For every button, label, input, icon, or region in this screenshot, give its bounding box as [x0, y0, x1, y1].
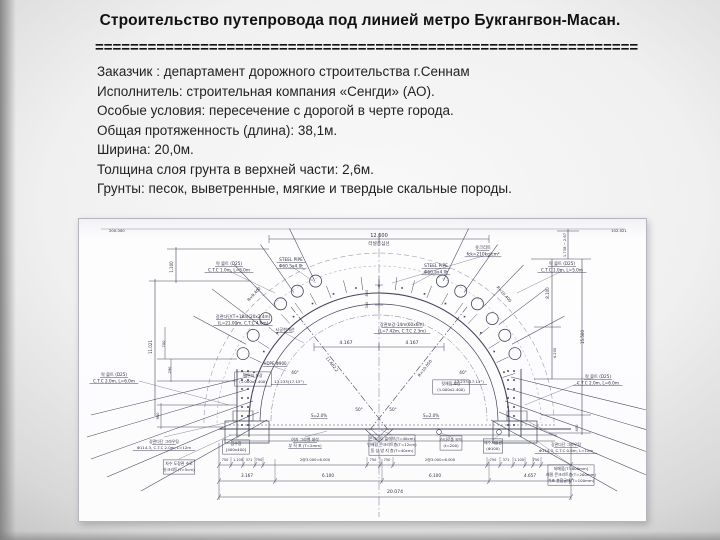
- drawing-text: 스티로폼 보드: [440, 437, 463, 442]
- drawing-label-angle50-l: 50°: [355, 407, 362, 412]
- drawing-label-grout-br: 강관다단 그라우팅Φ114.3, C.T.C 0.6m, L=12m: [535, 442, 597, 453]
- drawing-text: 40°: [459, 370, 466, 375]
- drawing-text: 4.200: [553, 347, 557, 358]
- drawing-text: 락 볼트 (D25): [549, 260, 575, 267]
- drawing-text: 강관보강-14m(60x6m): [380, 321, 425, 327]
- drawing-text: HDPE Φ900: [263, 361, 287, 366]
- drawing-label-a-371-l: 371: [246, 458, 253, 462]
- drawing-text: 750: [222, 458, 229, 462]
- drawing-label-sump: 집수정[400x400]: [223, 440, 250, 454]
- drawing-text: C.T.C 1.0m, L=5.0m: [541, 267, 583, 272]
- drawing-text: S=2.0%: [311, 413, 327, 418]
- drawing-text: 11.021: [148, 340, 153, 354]
- drawing-text: R=10.400: [496, 285, 513, 304]
- drawing-text: 부 직 포 (T=2mm): [288, 443, 322, 448]
- body-line-customer: Заказчик : департамент дорожного строите…: [97, 62, 667, 82]
- drawing-label-diag-l: 11.682.2: [325, 356, 340, 373]
- drawing-text: 뒷채움 보강: [441, 381, 461, 386]
- drawing-label-r-arc-l: R=9.400: [246, 285, 262, 302]
- drawing-label-corner-l: 200.000: [109, 228, 125, 233]
- drawing-label-vdim-4200: 4.200: [553, 347, 557, 358]
- drawing-label-c-total: 20.074: [387, 489, 403, 495]
- drawing-text: 800: [365, 289, 369, 297]
- drawing-text: (t=200): [443, 443, 459, 448]
- drawing-label-a-750-2: 750: [256, 458, 263, 462]
- drawing-text: 숏크리트: [475, 244, 491, 251]
- drawing-text: 200.000: [109, 228, 125, 233]
- drawing-text: 1.100: [233, 458, 243, 462]
- drawing-label-backfill-l: 배면지 보강(1.000x2.400): [235, 372, 271, 386]
- drawing-text: 750: [370, 458, 377, 462]
- drawing-label-note-bl: 차수 도장관 수로숏크리트(T=5cm): [163, 460, 195, 474]
- drawing-label-styro: 스티로폼 보드(t=200): [440, 436, 463, 450]
- drawing-text: 2@3.000=6.000: [300, 458, 331, 462]
- slide-edge-shadow-left: [0, 0, 16, 540]
- drawing-label-filter: 여과 그라벨 쇄석부 직 포 (T=2mm): [288, 437, 322, 448]
- drawing-text: C.T.C 2.0m, L=6.0m: [577, 380, 619, 385]
- drawing-text: 시공한계선: [275, 326, 294, 333]
- drawing-text: 300: [365, 301, 369, 309]
- drawing-text: 락 볼트 (D25): [216, 260, 242, 267]
- drawing-label-a-750-3: 750: [370, 458, 377, 462]
- body-line-contractor: Исполнитель: строительная компания «Сенг…: [97, 82, 667, 102]
- drawing-label-b-6100-r: 6.100: [429, 473, 441, 478]
- drawing-label-a-1100-l: 1.100: [233, 458, 243, 462]
- slide-body: Заказчик : департамент дорожного строите…: [97, 62, 667, 199]
- drawing-text: (1.000x2.400): [437, 387, 465, 392]
- drawing-text: 6.100: [322, 473, 334, 478]
- drawing-label-apex-800: 800: [365, 289, 369, 297]
- drawing-text: 강관다단(T+18a)(20x2.4m): [216, 313, 271, 320]
- drawing-text: [400x400]: [226, 447, 247, 452]
- drawing-label-steel-pipe-r: STEEL PIPEΦ60.5x4.0t: [422, 263, 451, 276]
- tunnel-cross-section-drawing: 200.000102.02112.600터널중심선800300STEEL PIP…: [79, 219, 646, 521]
- drawing-label-a-1100-r: 1.100: [514, 458, 524, 462]
- drawing-text: 1.738 ~ 2.67: [563, 232, 567, 257]
- drawing-text: (L=21.00m, C.T.C 4.0m): [218, 320, 269, 325]
- drawing-text: 17.233(17.15°): [274, 379, 304, 384]
- drawing-text: 기초 혼합골재(T=100mm): [548, 478, 595, 483]
- drawing-label-vdim-1100: 1.100: [169, 261, 174, 273]
- drawing-text: 강관다단 그라우팅: [551, 442, 581, 447]
- drawing-text: 차수 도장관 수로: [165, 461, 193, 466]
- body-line-soil-depth: Толщина слоя грунта в верхней части: 2,6…: [97, 160, 667, 180]
- body-line-soils: Грунты: песок, выветренные, мягкие и тве…: [97, 179, 667, 199]
- drawing-text: 동 상 방 지 층(T=40cm): [371, 448, 414, 453]
- drawing-label-a-6000-r: 2@3.000=6.000: [425, 458, 456, 462]
- drawing-label-hdpe: HDPE Φ900: [263, 361, 287, 366]
- drawing-text: 400: [575, 424, 579, 432]
- drawing-text: 15.500: [580, 330, 585, 344]
- drawing-label-a-371-r: 371: [503, 458, 510, 462]
- drawing-text: 750: [384, 458, 391, 462]
- drawing-text: 102.021: [611, 228, 627, 233]
- drawing-text: 4.167: [339, 340, 352, 346]
- drawing-text: 배면지 보강: [243, 373, 263, 378]
- drawing-text: 강관다단 그라우팅: [149, 439, 179, 444]
- drawing-label-vdim-8100: 8.100: [545, 287, 550, 299]
- drawing-text: 750: [533, 458, 540, 462]
- drawing-label-steel-pipe-l: STEEL PIPEΦ60.5x4.0t: [277, 257, 306, 270]
- drawing-label-rockbolt-tl: 락 볼트 (D25)C.T.C 1.0m, L=5.0m: [205, 260, 254, 273]
- body-line-conditions: Особые условия: пересечение с дорогой в …: [97, 101, 667, 121]
- drawing-label-angle40-r: 40°: [459, 370, 466, 375]
- drawing-text: 락 볼트 (D25): [585, 373, 611, 380]
- slide-title: Строительство путепровода под линией мет…: [30, 12, 690, 30]
- drawing-label-drainpipe: 배수시설관(Φ100): [483, 439, 503, 453]
- drawing-label-angle40-l: 40°: [291, 370, 298, 375]
- drawing-label-a-750-5: 750: [490, 458, 497, 462]
- drawing-label-grout-arc-l: 강관다단(T+18a)(20x2.4m)(L=21.00m, C.T.C 4.0…: [213, 313, 272, 326]
- drawing-text: Φ114.3, C.T.C 0.6m, L=12m: [539, 448, 594, 453]
- drawing-label-b-4657: 4.657: [524, 473, 536, 478]
- drawing-text: 4.167: [405, 340, 418, 346]
- drawing-label-limit-line: 시공한계선: [275, 326, 294, 333]
- body-line-length: Общая протяженность (длина): 38,1м.: [97, 121, 667, 141]
- drawing-text: Φ114.3, C.T.C 2.0m, L=12m: [137, 445, 192, 450]
- drawing-text: 371: [503, 458, 510, 462]
- drawing-label-vdim-400: 400: [575, 424, 579, 432]
- drawing-text: 1.100: [169, 261, 174, 273]
- drawing-label-fill-box: 되메움[T=800mm]래밀 콘크리트층(T=200mm)기초 혼합골재(T=1…: [546, 465, 596, 485]
- drawing-text: 6.100: [429, 473, 441, 478]
- drawing-label-b-6100-l: 6.100: [322, 473, 334, 478]
- drawing-text: (1.000x2.400): [239, 379, 267, 384]
- drawing-text: 4.657: [524, 473, 536, 478]
- drawing-text: 집수정: [231, 441, 242, 446]
- drawing-text: 40°: [291, 370, 298, 375]
- drawing-text: 371: [246, 458, 253, 462]
- drawing-text: 50°: [355, 407, 362, 412]
- drawing-label-slope-r: S=2.0%: [423, 413, 440, 418]
- slide-edge-shadow-bottom: [0, 531, 720, 540]
- drawing-text: 1.100: [514, 458, 524, 462]
- drawing-label-a-750-4: 750: [384, 458, 391, 462]
- drawing-label-vdim-15500: 15.500: [580, 330, 585, 344]
- drawing-text: 980: [156, 412, 160, 420]
- drawing-text: 3.167: [241, 473, 253, 478]
- drawing-text: 되메움[T=800mm]: [554, 466, 589, 471]
- drawing-text: C.T.C 2.0m, L=6.0m: [93, 378, 135, 383]
- drawing-text: 12.600: [370, 233, 388, 239]
- body-line-width: Ширина: 20,0м.: [97, 140, 667, 160]
- drawing-text: 락 볼트 (D25): [101, 371, 127, 378]
- drawing-text: 빈배합 콘크리트층(T=12cm): [367, 442, 417, 447]
- drawing-text: 20.074: [387, 489, 403, 495]
- drawing-text: 50°: [389, 407, 396, 412]
- drawing-text: 750: [490, 458, 497, 462]
- drawing-text: 2@3.000=6.000: [425, 458, 456, 462]
- drawing-text: 여과 그라벨 쇄석: [291, 437, 319, 442]
- drawing-text: (Φ100): [486, 446, 500, 451]
- drawing-text: 290: [168, 366, 172, 374]
- drawing-text: 래밀 콘크리트층(T=200mm): [546, 472, 596, 477]
- drawing-label-corner-r: 102.021: [611, 228, 627, 233]
- drawing-text: (L=7.42m, C.T.C 2.3m): [378, 328, 426, 333]
- drawing-label-rockbolt-ml: 락 볼트 (D25)C.T.C 2.0m, L=6.0m: [90, 371, 139, 384]
- drawing-label-vdim-290: 290: [168, 366, 172, 374]
- drawing-text: C.T.C 1.0m, L=5.0m: [208, 267, 250, 272]
- drawing-label-b-3167: 3.167: [241, 473, 253, 478]
- drawing-label-a-750-6: 750: [533, 458, 540, 462]
- drawing-label-fck-label: 숏크리트fck=210kg/cm²: [465, 244, 502, 258]
- drawing-label-vdim-1738: 1.738 ~ 2.67: [563, 232, 567, 257]
- engineering-drawing: 200.000102.02112.600터널중심선800300STEEL PIP…: [78, 218, 647, 522]
- drawing-label-rockbolt-mr: 락 볼트 (D25)C.T.C 2.0m, L=6.0m: [574, 373, 623, 386]
- drawing-text: 750: [256, 458, 263, 462]
- drawing-text: R=9.400: [246, 285, 262, 302]
- drawing-label-centerline: 터널중심선: [368, 240, 389, 247]
- drawing-label-vdim-980: 980: [156, 412, 160, 420]
- drawing-text: S=2.0%: [423, 413, 439, 418]
- drawing-text: 터널중심선: [368, 240, 389, 247]
- drawing-text: 콘크리트 슬래브(T=40cm): [369, 436, 415, 441]
- drawing-text: 8.100: [545, 287, 550, 299]
- drawing-label-apex-300: 300: [365, 301, 369, 309]
- drawing-label-vdim-11021: 11.021: [148, 340, 153, 354]
- drawing-label-a-750-1: 750: [222, 458, 229, 462]
- drawing-label-r-arc-r: R=10.400: [496, 285, 513, 304]
- drawing-label-vdim-700: 700: [162, 340, 166, 348]
- drawing-label-dim-4167-l: 4.167: [339, 340, 352, 346]
- drawing-text: 700: [162, 340, 166, 348]
- drawing-label-grout-arc-r: 강관보강-14m(60x6m)(L=7.42m, C.T.C 2.3m): [374, 321, 431, 334]
- drawing-label-t17-l: 17.233(17.15°): [271, 379, 307, 384]
- drawing-text: 숏크리트(T=5cm): [163, 467, 195, 472]
- drawing-label-dim-4167-r: 4.167: [405, 340, 418, 346]
- drawing-label-dim-top: 12.600: [370, 233, 388, 239]
- drawing-text: 11.682.2: [325, 356, 340, 373]
- drawing-label-a-6000-l: 2@3.000=6.000: [300, 458, 331, 462]
- slide: Строительство путепровода под линией мет…: [0, 0, 720, 540]
- drawing-text: 배수시설관: [484, 440, 502, 445]
- drawing-label-rockbolt-tr: 락 볼트 (D25)C.T.C 1.0m, L=5.0m: [538, 260, 587, 273]
- drawing-label-slab-box: 콘크리트 슬래브(T=40cm)빈배합 콘크리트층(T=12cm)동 상 방 지…: [367, 435, 417, 455]
- drawing-label-angle50-r: 50°: [389, 407, 396, 412]
- drawing-label-slope-l: S=2.0%: [311, 413, 328, 418]
- separator-line: ========================================…: [95, 39, 643, 59]
